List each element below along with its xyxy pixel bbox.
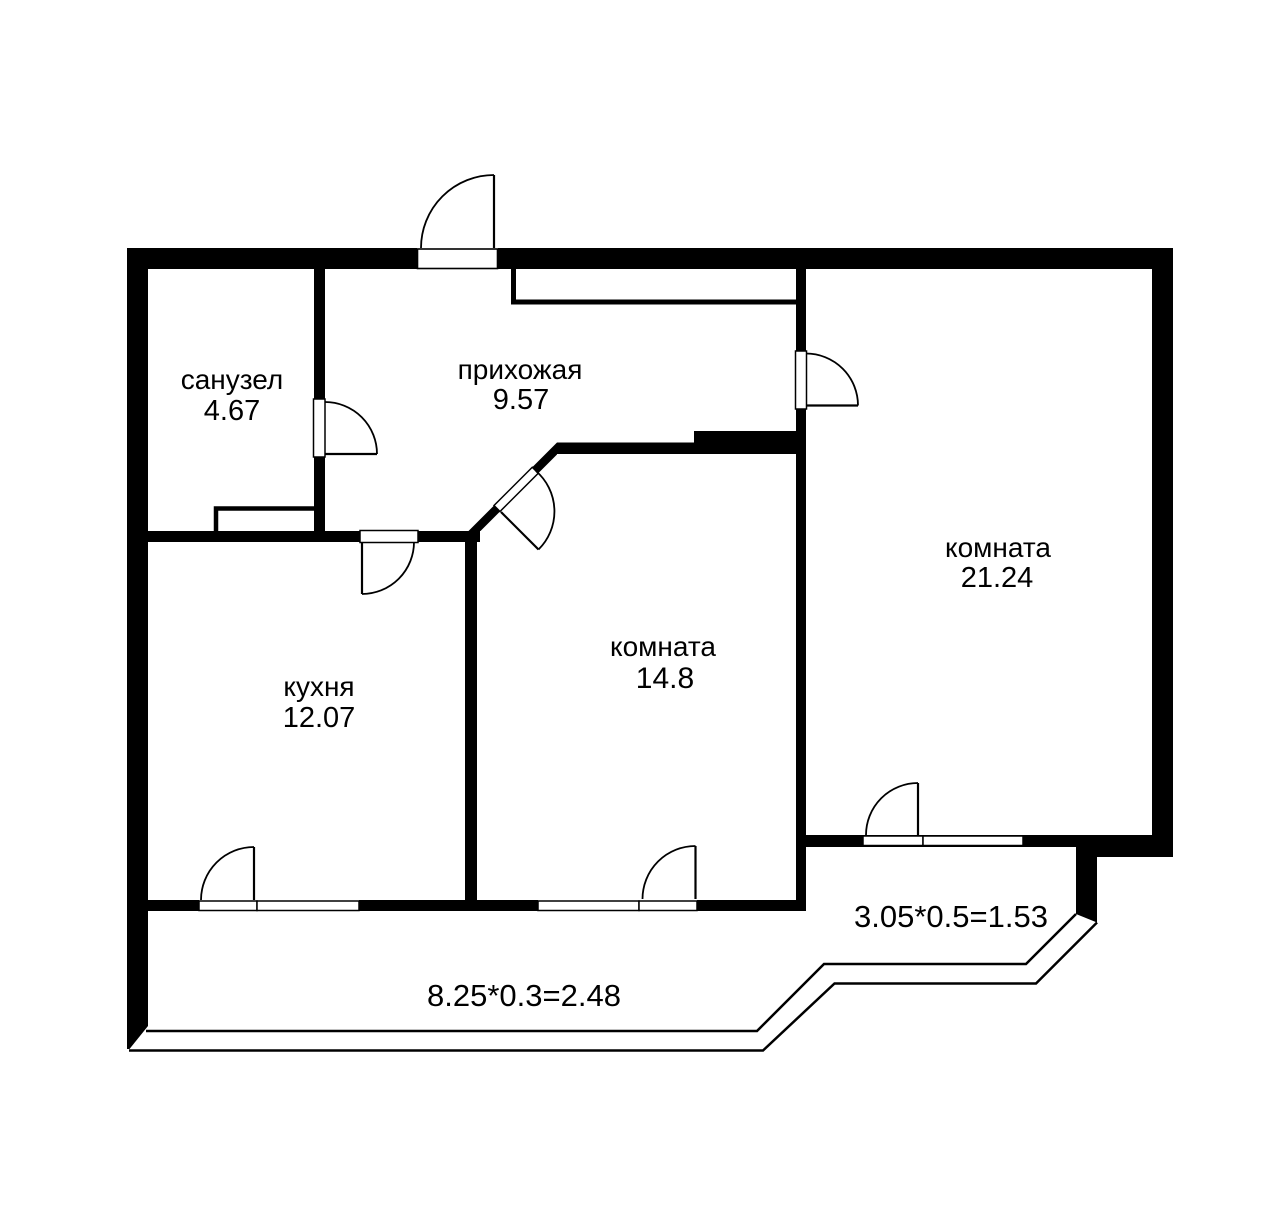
svg-text:3.05*0.5=1.53: 3.05*0.5=1.53 — [854, 899, 1048, 934]
svg-text:кухня: кухня — [283, 671, 354, 702]
svg-text:14.8: 14.8 — [636, 662, 694, 695]
svg-text:9.57: 9.57 — [493, 384, 549, 416]
svg-text:санузел: санузел — [181, 364, 284, 395]
svg-text:21.24: 21.24 — [961, 562, 1034, 594]
svg-text:8.25*0.3=2.48: 8.25*0.3=2.48 — [427, 978, 621, 1013]
svg-text:4.67: 4.67 — [204, 395, 260, 427]
svg-text:прихожая: прихожая — [458, 354, 583, 385]
svg-text:12.07: 12.07 — [283, 702, 356, 734]
svg-text:комната: комната — [610, 631, 716, 662]
svg-text:комната: комната — [945, 532, 1051, 563]
